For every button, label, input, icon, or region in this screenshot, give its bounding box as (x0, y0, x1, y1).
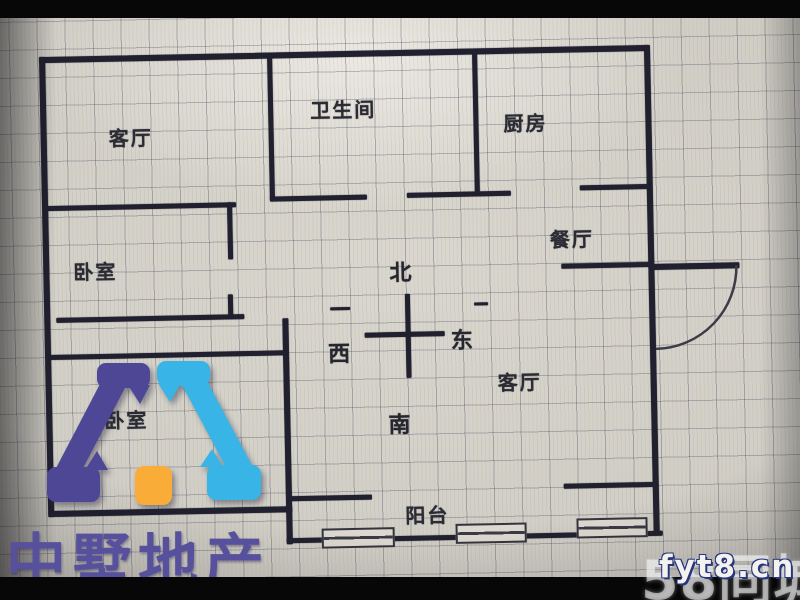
site-watermark-text: fyt8.cn (659, 549, 795, 585)
floor-plan-photo: 北 南 东 西 客厅卫生间厨房餐厅卧室卧室客厅阳台 (0, 0, 800, 600)
letterbox-top-bar (0, 0, 800, 18)
screenshot: 北 南 东 西 客厅卫生间厨房餐厅卧室卧室客厅阳台 (0, 0, 800, 600)
agency-logo-house-icon (0, 0, 800, 600)
